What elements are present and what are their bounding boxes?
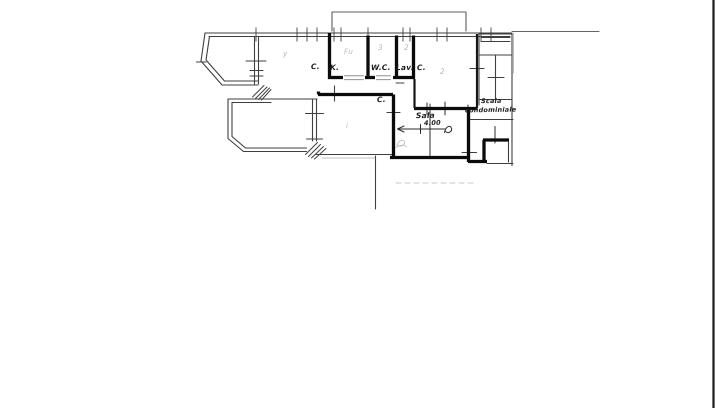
- room-label-c-1: C.: [311, 63, 320, 71]
- pencil-mark-2: Fu: [344, 48, 353, 56]
- dimension-label: 4.00: [424, 120, 441, 127]
- room-label-laundry: Lav.: [396, 64, 414, 72]
- room-label-c-2: C.: [417, 64, 426, 72]
- stairwell-label-line2: condominiale: [465, 107, 516, 114]
- pencil-mark-3: 3: [378, 44, 383, 52]
- room-label-kitchen: K.: [330, 64, 339, 72]
- pencil-mark-5: 2: [440, 68, 445, 76]
- pencil-mark-1: y: [283, 50, 288, 58]
- room-label-c-3: C.: [377, 96, 386, 104]
- stairwell-label-line1: Scala: [481, 98, 502, 105]
- scanned-floor-plan-page: C. K. W.C. Lav. C. C. Sala 4.00 Scala co…: [0, 0, 717, 408]
- window-ticks: [256, 28, 491, 42]
- pencil-mark-4: 2: [404, 44, 409, 52]
- pencil-mark-6: i: [346, 122, 348, 130]
- floor-plan-linework: [0, 0, 717, 408]
- room-label-wc: W.C.: [371, 64, 391, 72]
